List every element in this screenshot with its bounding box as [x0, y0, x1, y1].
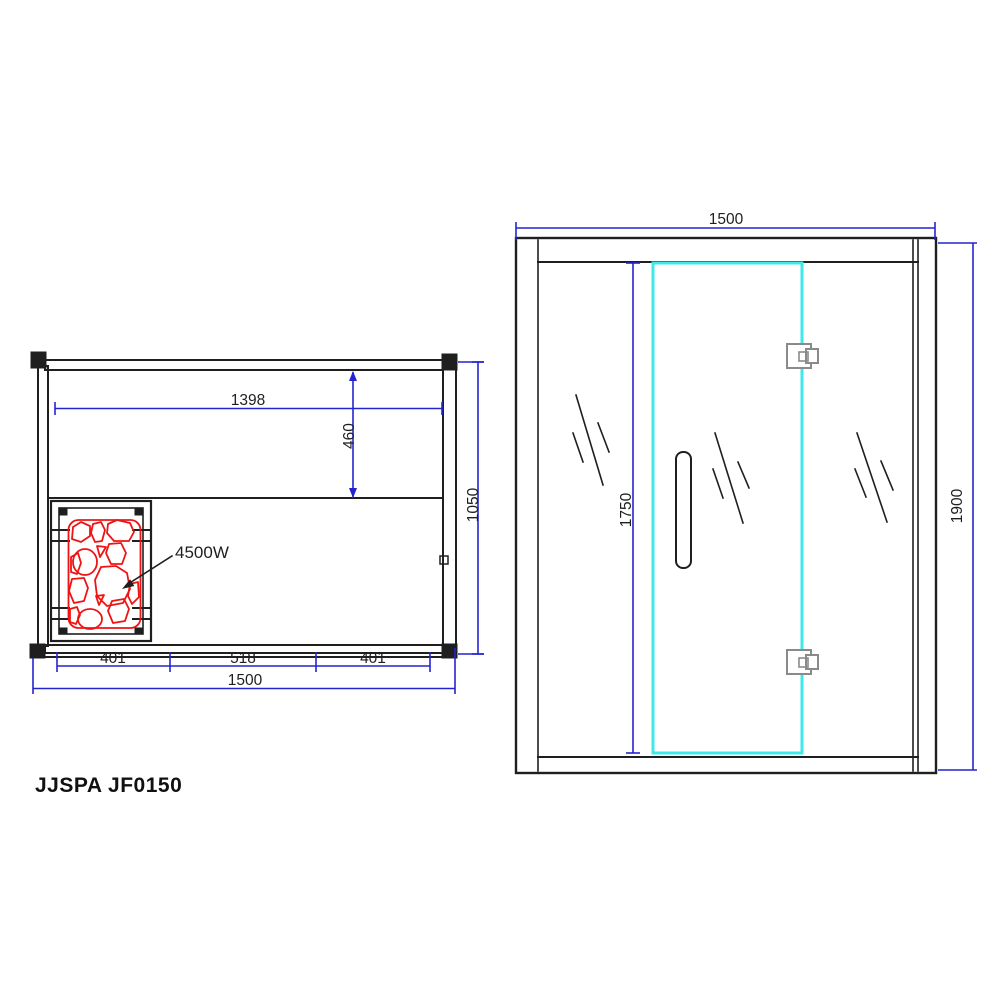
plan-right-wall — [443, 368, 456, 645]
glass-mark-left — [573, 395, 609, 485]
dim-label-overall-height: 1900 — [949, 488, 966, 523]
plan-corner-post-tr — [442, 354, 457, 370]
stone — [72, 522, 90, 542]
heater-post-bl — [59, 628, 67, 634]
model-number-label: JJSPA JF0150 — [35, 774, 182, 798]
glass-mark-right — [855, 433, 893, 522]
dim-arrow-down — [349, 488, 357, 498]
glass-stroke — [855, 469, 866, 497]
stone — [91, 522, 105, 542]
hinge-bottom — [787, 650, 818, 674]
glass-stroke — [573, 433, 583, 462]
front-door-handle — [676, 452, 691, 568]
dim-label-overall-width-front: 1500 — [709, 211, 744, 228]
front-outer-frame — [516, 238, 936, 773]
hinge-top — [787, 344, 818, 368]
technical-drawing-canvas: 4500W 1398 460 1050 401 518 401 — [0, 0, 1000, 1000]
stone — [108, 599, 129, 623]
stone — [107, 520, 134, 541]
heater-post-br — [135, 628, 143, 634]
heater-stones — [69, 520, 141, 629]
dim-label-overall-depth: 1050 — [465, 487, 482, 522]
stone — [69, 578, 88, 603]
drawing-sheet: 4500W 1398 460 1050 401 518 401 — [0, 0, 1000, 1000]
front-view — [516, 238, 936, 773]
dim-label-front-left: 401 — [100, 650, 126, 667]
glass-stroke — [738, 462, 749, 488]
dim-label-bench-depth: 460 — [341, 423, 358, 449]
glass-stroke — [713, 469, 723, 498]
dim-label-front-center: 518 — [230, 650, 256, 667]
stone — [97, 546, 106, 557]
heater-power-label: 4500W — [175, 543, 229, 562]
front-dimensions — [516, 222, 977, 770]
heater-post-tr — [135, 509, 143, 515]
glass-stroke — [715, 433, 743, 523]
plan-corner-post-bl — [30, 644, 45, 658]
plan-corner-post-tl — [31, 352, 46, 368]
glass-stroke — [576, 395, 603, 485]
dim-label-door-height: 1750 — [618, 492, 635, 527]
glass-stroke — [857, 433, 887, 522]
stone — [106, 543, 126, 564]
plan-back-wall — [45, 360, 443, 370]
glass-stroke — [881, 461, 893, 490]
stone — [78, 609, 102, 629]
dim-label-overall-width-plan: 1500 — [228, 672, 263, 689]
plan-left-wall — [38, 366, 48, 646]
glass-mark-door — [713, 433, 749, 523]
glass-stroke — [598, 423, 609, 452]
dim-label-front-right: 401 — [360, 650, 386, 667]
heater-post-tl — [59, 509, 67, 515]
dim-label-inner-width: 1398 — [231, 392, 265, 409]
dim-arrow-up — [349, 371, 357, 381]
